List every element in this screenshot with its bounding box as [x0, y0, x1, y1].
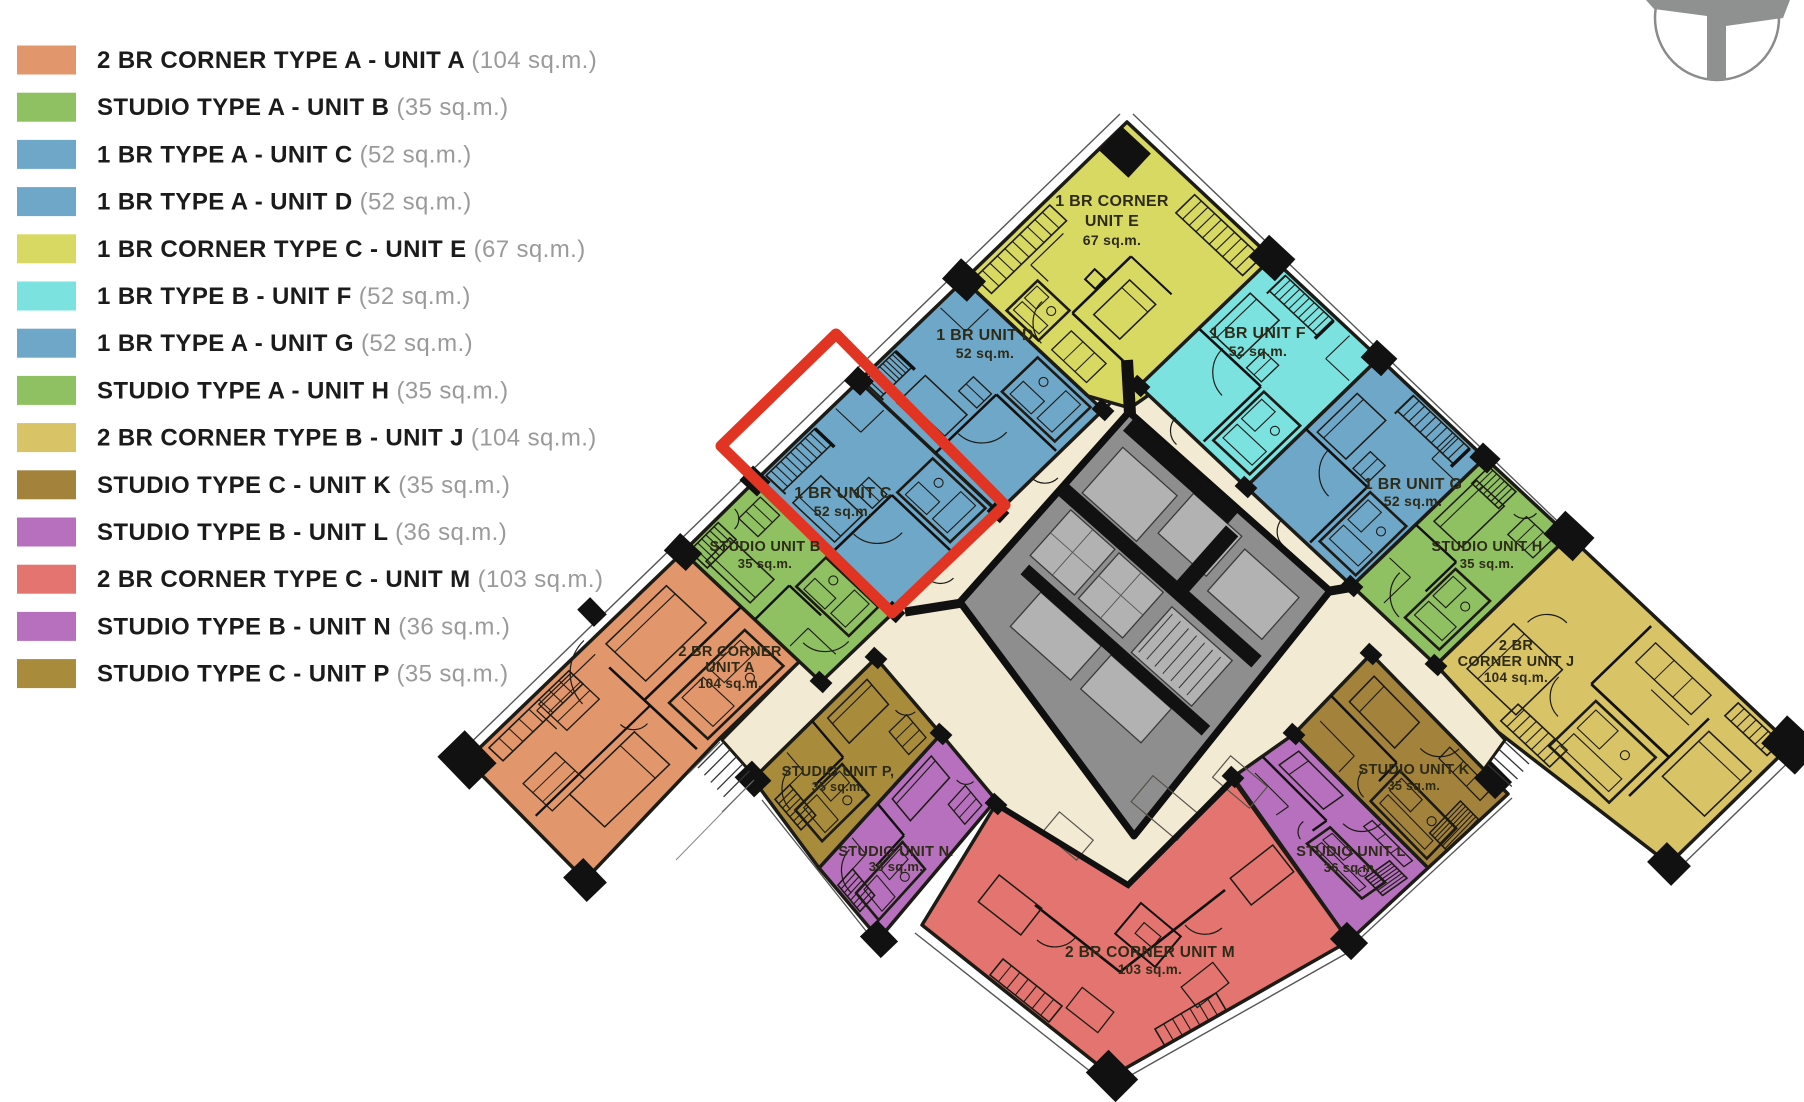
svg-text:STUDIO TYPE B - UNIT L (36 sq.: STUDIO TYPE B - UNIT L (36 sq.m.): [97, 519, 507, 546]
svg-text:67 sq.m.: 67 sq.m.: [1083, 232, 1141, 248]
svg-text:UNIT E: UNIT E: [1085, 213, 1139, 230]
svg-text:2 BR CORNER TYPE A - UNIT A (1: 2 BR CORNER TYPE A - UNIT A (104 sq.m.): [97, 47, 597, 74]
svg-text:STUDIO TYPE A - UNIT B (35 sq.: STUDIO TYPE A - UNIT B (35 sq.m.): [97, 94, 508, 121]
svg-text:36 sq.m.: 36 sq.m.: [869, 859, 923, 874]
svg-text:104 sq.m.: 104 sq.m.: [698, 676, 762, 691]
svg-text:35 sq.m.: 35 sq.m.: [1388, 779, 1440, 793]
svg-text:1 BR UNIT D: 1 BR UNIT D: [936, 327, 1034, 344]
svg-text:1 BR TYPE A - UNIT G (52 sq.m.: 1 BR TYPE A - UNIT G (52 sq.m.): [97, 330, 473, 357]
svg-text:52 sq.m.: 52 sq.m.: [814, 503, 872, 519]
svg-text:1 BR UNIT F: 1 BR UNIT F: [1210, 325, 1306, 342]
svg-text:UNIT A: UNIT A: [705, 660, 755, 676]
svg-text:52 sq.m.: 52 sq.m.: [1384, 493, 1442, 509]
svg-text:2 BR CORNER UNIT M: 2 BR CORNER UNIT M: [1065, 944, 1235, 961]
svg-text:52 sq.m.: 52 sq.m.: [1229, 343, 1287, 359]
svg-text:103 sq.m.: 103 sq.m.: [1118, 962, 1182, 977]
svg-text:1 BR TYPE A - UNIT D (52 sq.m.: 1 BR TYPE A - UNIT D (52 sq.m.): [97, 189, 472, 216]
svg-text:STUDIO TYPE A - UNIT H (35 sq.: STUDIO TYPE A - UNIT H (35 sq.m.): [97, 377, 508, 404]
svg-text:CORNER UNIT J: CORNER UNIT J: [1458, 654, 1575, 670]
svg-text:STUDIO UNIT B: STUDIO UNIT B: [709, 539, 820, 555]
svg-text:STUDIO UNIT P,: STUDIO UNIT P,: [782, 764, 895, 780]
svg-text:STUDIO UNIT N.: STUDIO UNIT N.: [838, 844, 953, 860]
svg-text:1 BR UNIT G: 1 BR UNIT G: [1364, 476, 1462, 493]
svg-text:35 sq.m.: 35 sq.m.: [738, 556, 792, 571]
svg-text:STUDIO TYPE B - UNIT N (36 sq: STUDIO TYPE B - UNIT N (36 sq.m.): [97, 613, 510, 640]
svg-text:35 sq.m.: 35 sq.m.: [812, 780, 864, 794]
svg-text:STUDIO TYPE C - UNIT P (35 sq.: STUDIO TYPE C - UNIT P (35 sq.m.): [97, 661, 508, 688]
svg-text:1 BR CORNER: 1 BR CORNER: [1055, 193, 1169, 210]
svg-text:STUDIO UNIT K: STUDIO UNIT K: [1358, 762, 1469, 778]
svg-text:104 sq.m.: 104 sq.m.: [1484, 670, 1548, 685]
svg-text:2 BR CORNER TYPE C - UNIT M (1: 2 BR CORNER TYPE C - UNIT M (103 sq.m.): [97, 566, 603, 593]
svg-text:35 sq.m.: 35 sq.m.: [1460, 556, 1514, 571]
svg-text:1 BR TYPE B - UNIT F (52 sq.m.: 1 BR TYPE B - UNIT F (52 sq.m.): [97, 283, 471, 310]
svg-text:2 BR: 2 BR: [1499, 638, 1533, 654]
svg-text:1 BR UNIT C: 1 BR UNIT C: [794, 485, 892, 502]
svg-text:1 BR TYPE A - UNIT C (52 sq.m.: 1 BR TYPE A - UNIT C (52 sq.m.): [97, 141, 472, 168]
svg-text:STUDIO TYPE C - UNIT K (35 sq.: STUDIO TYPE C - UNIT K (35 sq.m.): [97, 472, 510, 499]
svg-text:2 BR CORNER: 2 BR CORNER: [678, 644, 781, 660]
svg-text:STUDIO UNIT L: STUDIO UNIT L: [1296, 844, 1405, 860]
svg-text:52 sq.m.: 52 sq.m.: [956, 345, 1014, 361]
svg-text:1 BR CORNER TYPE C - UNIT E (: 1 BR CORNER TYPE C - UNIT E (67 sq.m.): [97, 236, 586, 263]
svg-text:36 sq.m.: 36 sq.m.: [1324, 860, 1378, 875]
svg-text:STUDIO UNIT H: STUDIO UNIT H: [1431, 539, 1542, 555]
svg-text:2 BR CORNER TYPE B - UNIT J (1: 2 BR CORNER TYPE B - UNIT J (104 sq.m.): [97, 425, 597, 452]
